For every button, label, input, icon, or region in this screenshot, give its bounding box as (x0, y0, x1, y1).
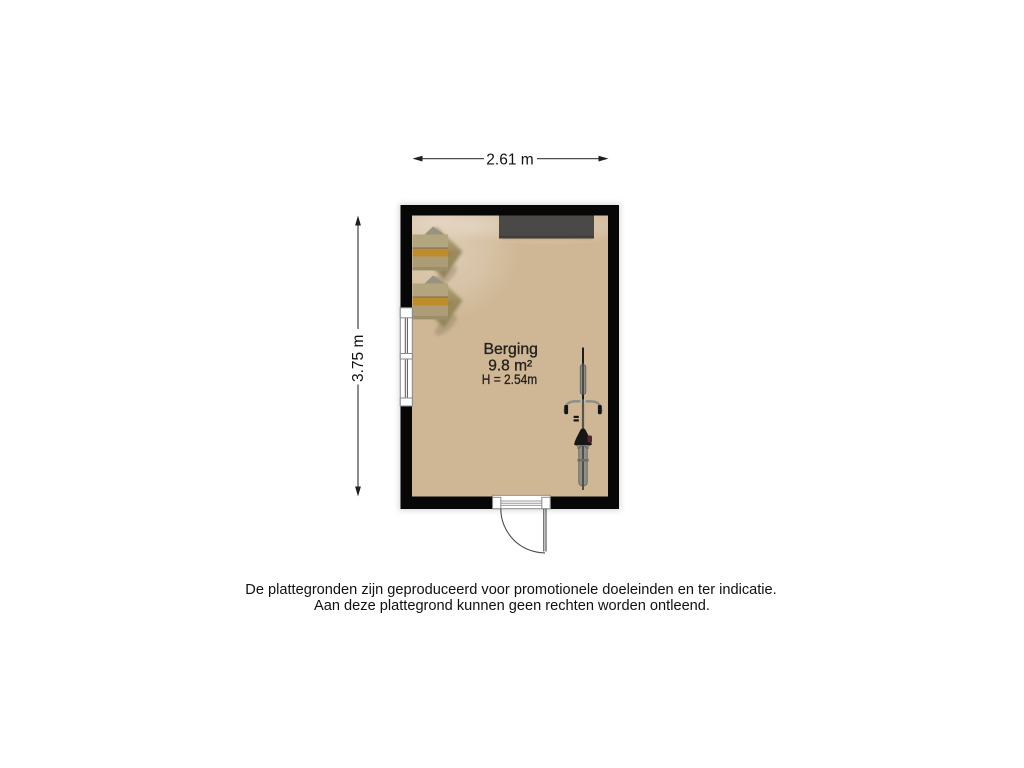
svg-text:2.61 m: 2.61 m (486, 152, 533, 169)
svg-text:3.75 m: 3.75 m (350, 335, 367, 382)
svg-text:Berging: Berging (483, 341, 537, 358)
svg-text:De plattegronden zijn geproduc: De plattegronden zijn geproduceerd voor … (245, 582, 776, 598)
svg-text:Aan deze plattegrond kunnen ge: Aan deze plattegrond kunnen geen rechten… (314, 598, 710, 614)
svg-text:H = 2.54m: H = 2.54m (482, 371, 538, 387)
